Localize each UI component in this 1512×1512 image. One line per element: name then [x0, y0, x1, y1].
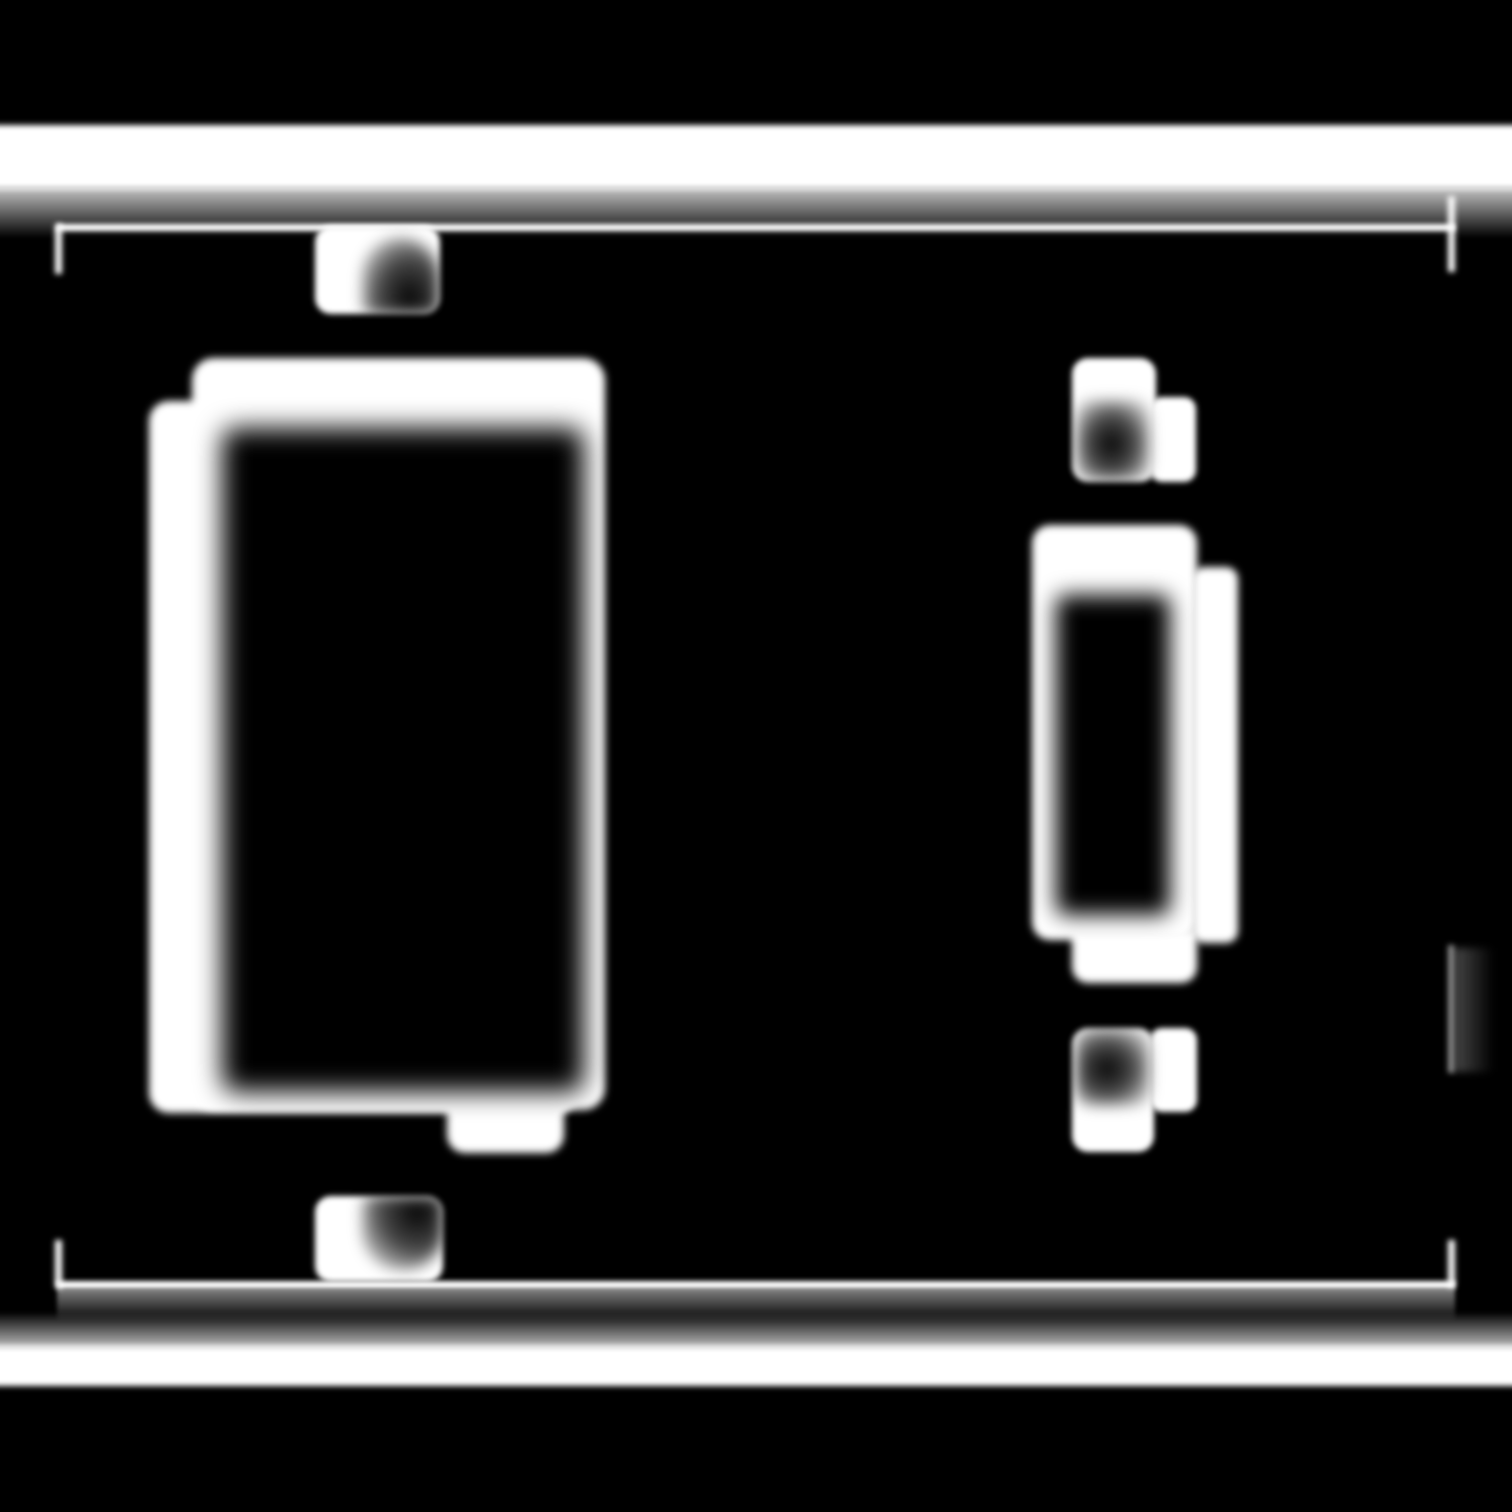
plate-bottom-edge-fade: [0, 1312, 1512, 1350]
wall-plate-diagram: [0, 0, 1512, 1512]
toggle-lever-slot: [1056, 595, 1170, 915]
screw-slot-top-left: [362, 238, 439, 314]
toggle-frame-offset-layer: [1192, 567, 1238, 943]
bezel-corner-bottom-left: [55, 1240, 62, 1288]
screw-slot-bottom-right: [1076, 1028, 1150, 1106]
bezel-right-segment-glow: [1454, 948, 1494, 1072]
rocker-opening: [222, 428, 584, 1092]
bezel-outline-top: [57, 224, 1455, 231]
plate-top-edge-highlight: [0, 125, 1512, 189]
mounting-screw-bottom-right-step: [1150, 1028, 1197, 1112]
bezel-corner-top-left: [55, 224, 62, 274]
bezel-corner-bottom-right: [1448, 1240, 1455, 1287]
rocker-frame-bottom-tab: [447, 1090, 564, 1153]
bezel-corner-top-right: [1448, 196, 1455, 272]
plate-bottom-edge-highlight: [0, 1346, 1512, 1386]
screw-slot-top-right: [1076, 400, 1150, 480]
screw-slot-bottom-left: [362, 1196, 443, 1270]
mounting-screw-top-right-step: [1150, 397, 1196, 482]
bezel-outline-bottom: [57, 1281, 1455, 1289]
toggle-frame-bottom-tab: [1072, 930, 1197, 983]
